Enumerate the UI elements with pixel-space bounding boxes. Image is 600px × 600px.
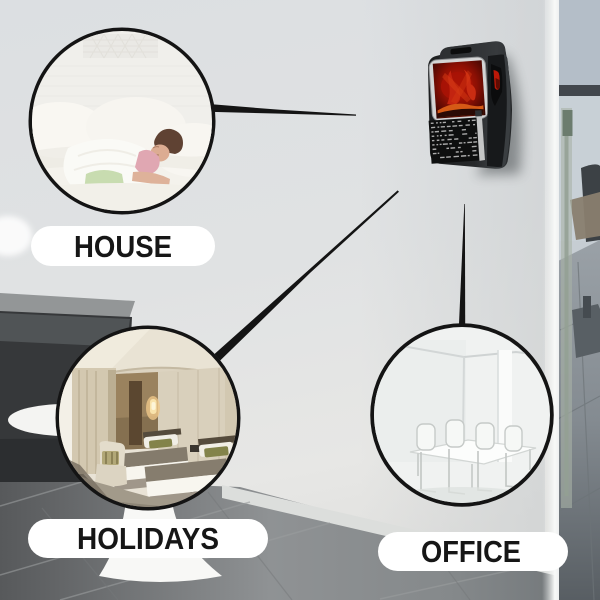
svg-text:HOLIDAYS: HOLIDAYS [77,521,219,556]
svg-text:HOUSE: HOUSE [74,229,172,264]
svg-text:OFFICE: OFFICE [421,534,521,569]
